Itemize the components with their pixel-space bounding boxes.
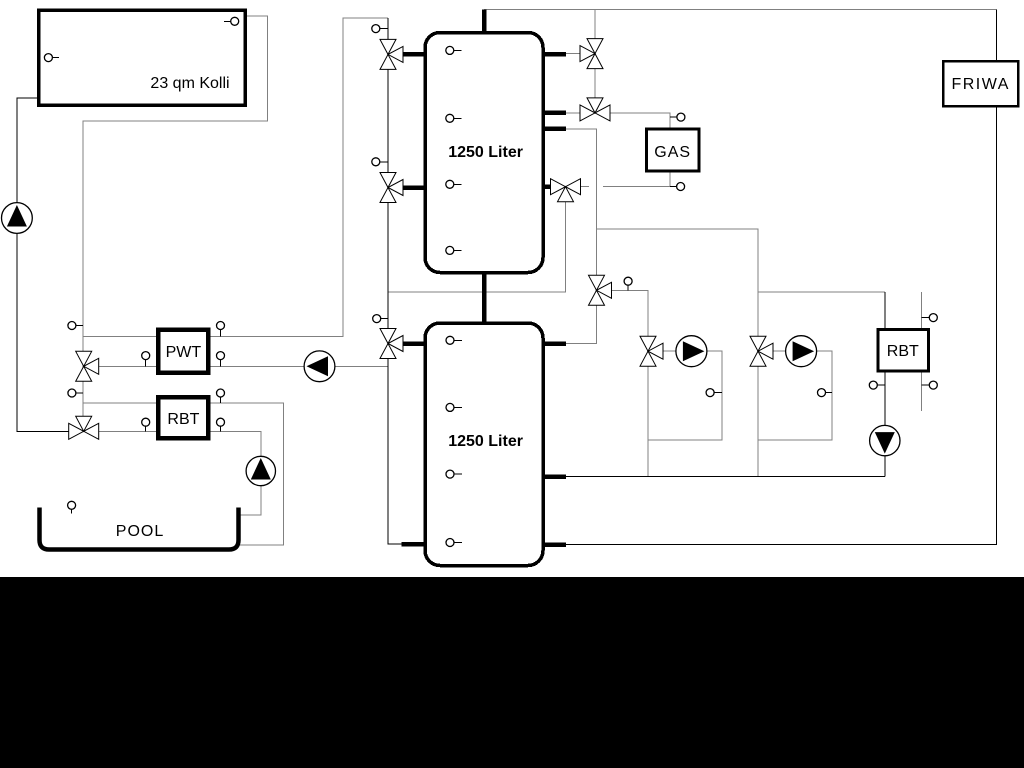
svg-text:RBT: RBT: [167, 411, 199, 428]
svg-text:23 qm Kolli: 23 qm Kolli: [150, 75, 229, 92]
svg-text:1250 Liter: 1250 Liter: [448, 144, 523, 161]
svg-text:FRIWA: FRIWA: [951, 76, 1009, 93]
svg-text:GAS: GAS: [654, 144, 691, 161]
svg-text:1250 Liter: 1250 Liter: [448, 433, 523, 450]
svg-text:RBT: RBT: [887, 343, 919, 360]
svg-text:POOL: POOL: [116, 523, 164, 540]
svg-text:PWT: PWT: [166, 344, 202, 361]
